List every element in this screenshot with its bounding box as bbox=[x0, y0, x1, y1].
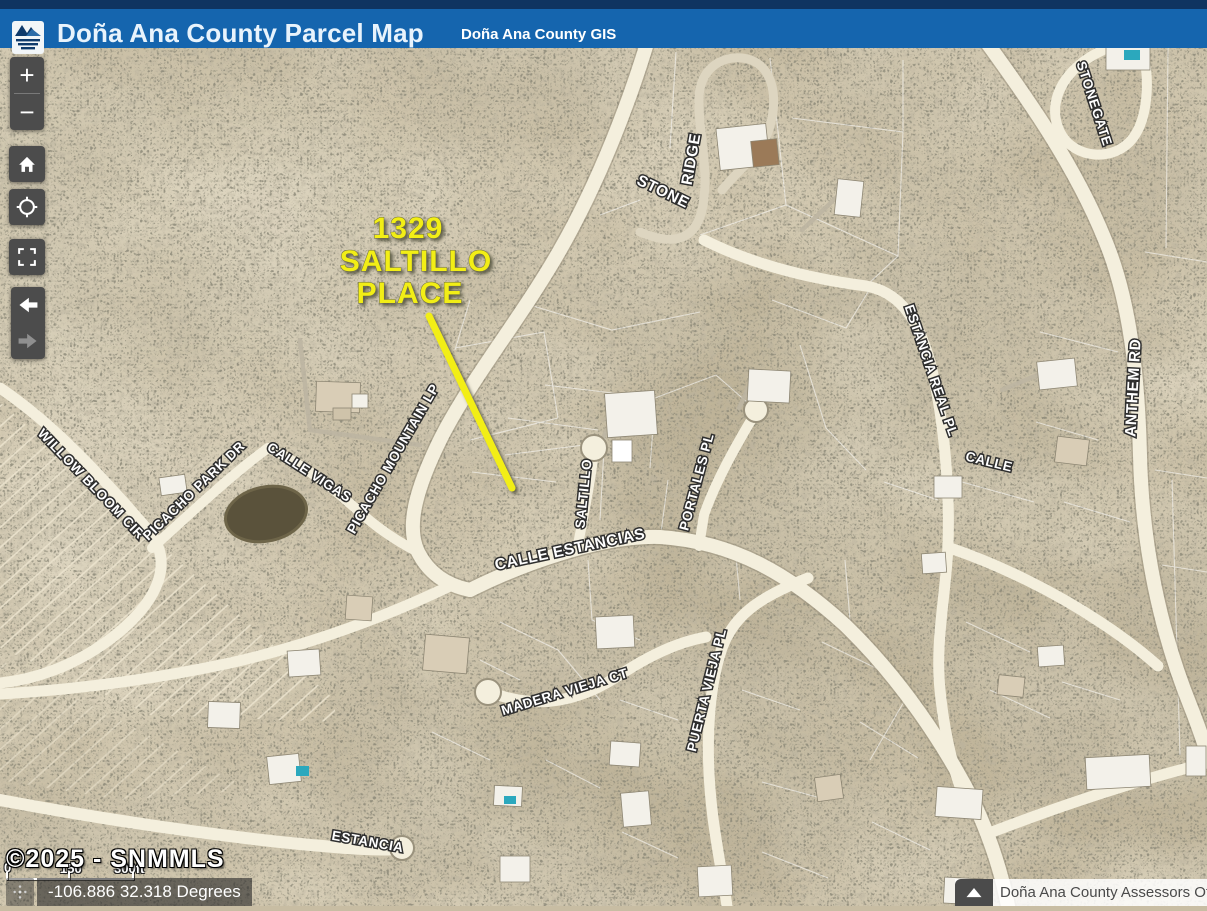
header: Doña Ana County Parcel Map Doña Ana Coun… bbox=[0, 0, 1207, 48]
next-extent-button[interactable] bbox=[11, 323, 45, 359]
extent-nav-group bbox=[11, 287, 45, 359]
forward-arrow-icon bbox=[16, 329, 40, 353]
home-icon bbox=[16, 153, 38, 175]
attribution-expand-button[interactable] bbox=[955, 879, 993, 906]
attribution-text: Doña Ana County Assessors Offi bbox=[993, 884, 1207, 901]
chevron-up-icon bbox=[964, 885, 984, 901]
home-button[interactable] bbox=[9, 146, 45, 182]
copyright-text: ©2025 - SNMMLS bbox=[6, 845, 225, 874]
plus-icon: + bbox=[19, 62, 34, 88]
locate-button[interactable] bbox=[9, 189, 45, 225]
app-subtitle: Doña Ana County GIS bbox=[461, 26, 616, 43]
coordinate-readout: -106.886 32.318 Degrees bbox=[37, 878, 252, 906]
default-extent-button-inner[interactable] bbox=[9, 239, 45, 275]
attribution-bar: Doña Ana County Assessors Offi bbox=[955, 879, 1207, 906]
minus-icon: − bbox=[19, 99, 34, 125]
default-extent-button[interactable] bbox=[9, 239, 45, 275]
back-arrow-icon bbox=[16, 293, 40, 317]
annotation-line-3: PLACE bbox=[357, 277, 464, 310]
dot-crosshair-icon bbox=[12, 883, 28, 901]
home-button-inner[interactable] bbox=[9, 146, 45, 182]
annotation-line-2: SALTILLO bbox=[340, 245, 492, 278]
coordinate-capture-button[interactable] bbox=[6, 878, 34, 906]
zoom-out-button[interactable]: − bbox=[10, 94, 44, 130]
app-title: Doña Ana County Parcel Map bbox=[57, 18, 424, 49]
previous-extent-button[interactable] bbox=[11, 287, 45, 323]
locate-target-icon bbox=[15, 195, 39, 219]
extent-brackets-icon bbox=[16, 246, 38, 268]
county-logo-icon bbox=[12, 21, 44, 54]
zoom-in-button[interactable]: + bbox=[10, 57, 44, 93]
map-canvas[interactable]: STONE RIDGE STONEGATE ANTHEM RD ESTANCIA… bbox=[0, 0, 1207, 906]
annotation-line-1: 1329 bbox=[373, 212, 444, 245]
locate-button-inner[interactable] bbox=[9, 189, 45, 225]
zoom-control-group: + − bbox=[10, 57, 44, 130]
coordinate-text: -106.886 32.318 Degrees bbox=[48, 882, 241, 902]
